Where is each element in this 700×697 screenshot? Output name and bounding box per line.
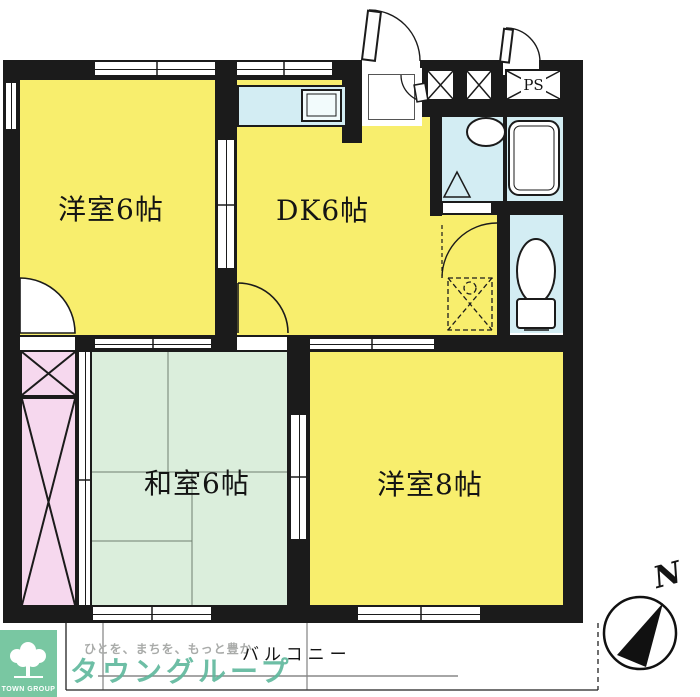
washing-machine-space — [448, 278, 492, 330]
logo-caption: TOWN GROUP — [0, 686, 57, 693]
window-ticks — [78, 61, 421, 621]
balcony-label: バルコニー — [242, 640, 352, 665]
door-dk — [238, 283, 288, 333]
compass — [604, 597, 676, 669]
room-label-west8: 洋室8帖 — [377, 463, 483, 503]
door-toilet-arc — [442, 223, 497, 278]
toilet-bowl — [517, 239, 555, 303]
ps-label: PS — [505, 69, 562, 101]
ps-label-text: PS — [521, 76, 545, 94]
room-label-west6: 洋室6帖 — [58, 188, 164, 228]
toilet-tank — [517, 299, 555, 328]
bathtub — [509, 121, 559, 195]
washer-triangle — [444, 172, 470, 197]
wash-basin — [467, 118, 505, 146]
room-label-tatami: 和室6帖 — [144, 462, 250, 502]
door-arcs — [20, 10, 540, 333]
door-west6 — [20, 278, 75, 333]
room-label-dk: DK6帖 — [276, 189, 369, 229]
door-entrance-leaf — [362, 11, 381, 61]
plan-linework — [0, 0, 700, 697]
town-group-logo: TOWN GROUP — [0, 630, 57, 697]
door-shoe-leaf — [414, 83, 428, 102]
floor-plan: 洋室6帖 DK6帖 洋室8帖 和室6帖 PS バルコニー N ひとを、まちを、も… — [0, 0, 700, 697]
door-ps-leaf — [500, 29, 513, 63]
hatch-x-marks — [22, 71, 560, 605]
